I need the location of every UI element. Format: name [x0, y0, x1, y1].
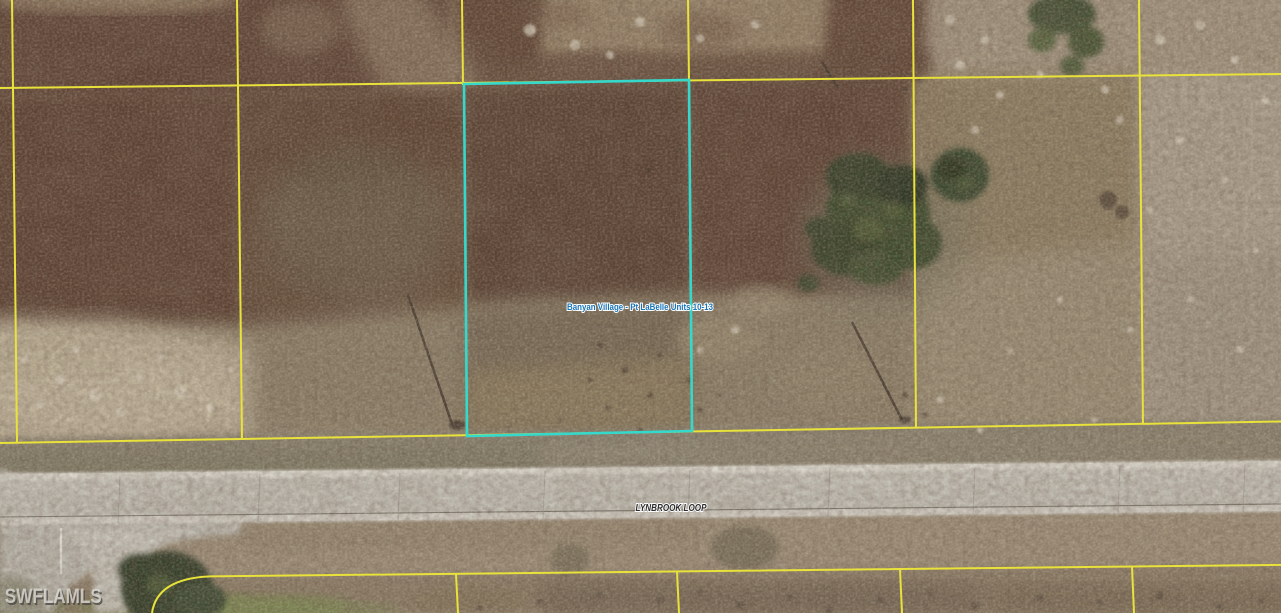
svg-text:SWFLAMLS: SWFLAMLS [5, 585, 102, 608]
svg-text:Banyan Village - Pt LaBelle Un: Banyan Village - Pt LaBelle Units 10-13 [567, 302, 713, 312]
svg-text:LYNBROOK LOOP: LYNBROOK LOOP [636, 503, 707, 514]
